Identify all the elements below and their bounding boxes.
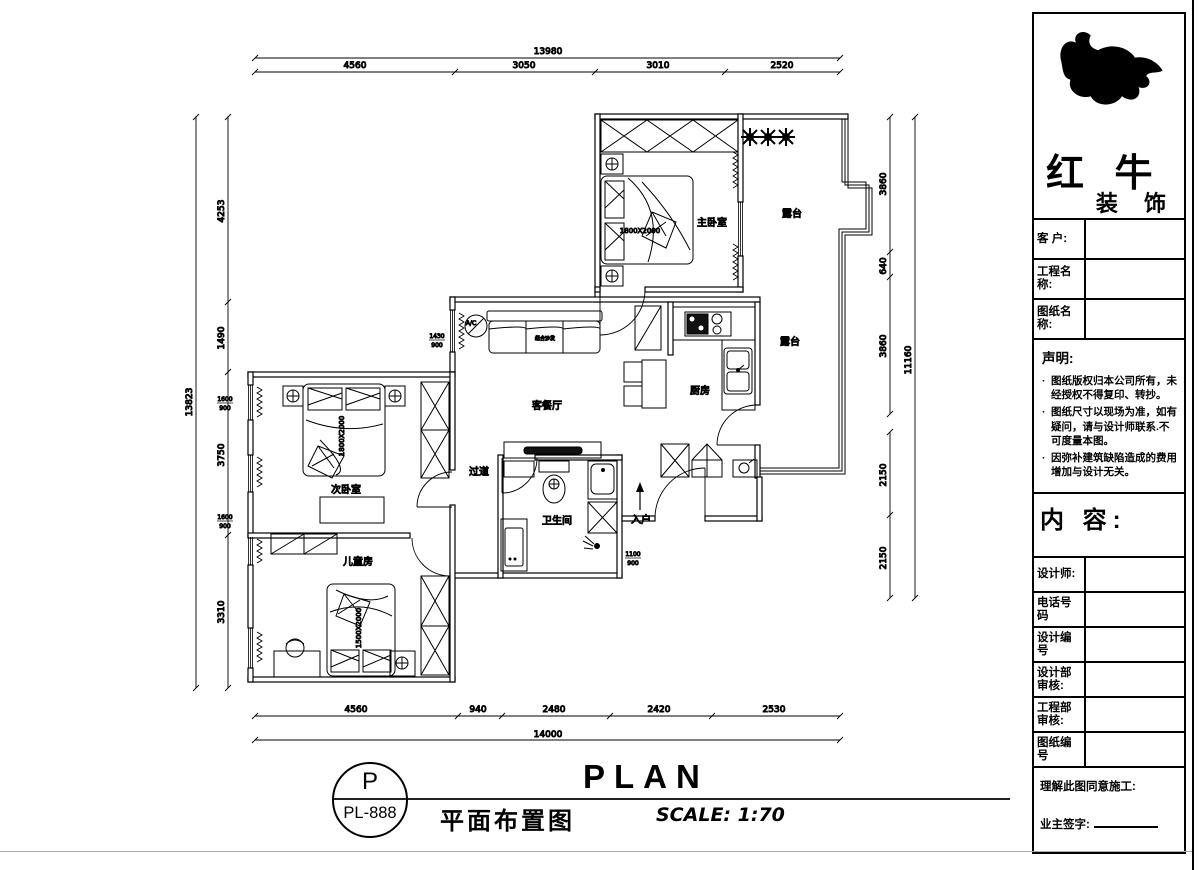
field-label-design-review: 设计部审核: xyxy=(1034,663,1086,696)
win-mark-4-w: 1100 xyxy=(625,551,640,558)
drawing-sheet: 13980 4560 3050 3010 2520 4560 940 2480 … xyxy=(0,0,1200,870)
field-label-engineering-review: 工程部审核: xyxy=(1034,698,1086,731)
room-label-terrace2: 露台 xyxy=(780,335,800,348)
win-mark-2-w: 1600 xyxy=(217,514,232,521)
win-mark-3-w: 1430 xyxy=(429,333,444,340)
win-mark-4-h: 900 xyxy=(627,560,639,567)
statement-item-2: 图纸尺寸以现场为准，如有疑问，请与设计师联系.不可度量本图。 xyxy=(1042,405,1178,448)
field-row-engineering-review: 工程部审核: xyxy=(1034,696,1184,731)
field-value-customer[interactable] xyxy=(1086,220,1184,258)
field-value-project-name[interactable] xyxy=(1086,260,1184,298)
statement-title: 声明: xyxy=(1042,347,1178,367)
drawing-number-bubble: P PL-888 xyxy=(332,762,408,838)
living-room-furniture xyxy=(465,306,666,458)
room-label-bath: 卫生间 xyxy=(542,514,572,527)
title-rule-line xyxy=(334,798,1010,800)
dim-bot-seg1: 4560 xyxy=(345,705,368,715)
field-value-design-review[interactable] xyxy=(1086,663,1184,696)
sheet-right-border xyxy=(1192,0,1194,870)
company-logo-box: 红 牛 装 饰 xyxy=(1034,14,1184,218)
field-label-designer: 设计师: xyxy=(1034,558,1086,591)
drawing-title-cn: 平面布置图 xyxy=(440,801,575,836)
statement-item-1: 图纸版权归本公司所有，未经授权不得复印、转抄。 xyxy=(1042,374,1178,402)
room-label-second: 次卧室 xyxy=(331,483,361,496)
title-block: 红 牛 装 饰 客 户: 工程名称: 图纸名称: 声明: 图纸版权归本公司所有，… xyxy=(1032,12,1186,854)
entry-arrow xyxy=(636,482,644,510)
field-row-sheet-number: 图纸编号 xyxy=(1034,731,1184,766)
second-bedroom-furniture xyxy=(283,382,449,523)
drawing-code-number: PL-888 xyxy=(334,804,406,823)
master-bedroom-furniture xyxy=(601,120,738,286)
bull-logo-icon xyxy=(1052,26,1170,126)
field-value-drawing-name[interactable] xyxy=(1086,300,1184,338)
content-section-label: 内 容: xyxy=(1034,492,1184,556)
second-bed-size: 1800X2000 xyxy=(338,416,346,456)
dim-bot-seg4: 2420 xyxy=(648,705,671,715)
dim-top xyxy=(252,55,843,75)
dim-right-seg1: 3860 xyxy=(879,172,889,195)
dim-left-seg2: 1490 xyxy=(217,326,227,349)
dim-top-seg1: 4560 xyxy=(344,61,367,71)
floor-plan-canvas: 13980 4560 3050 3010 2520 4560 940 2480 … xyxy=(0,0,1030,870)
room-label-master: 主卧室 xyxy=(697,216,727,229)
field-label-sheet-number: 图纸编号 xyxy=(1034,733,1086,766)
dim-left-seg4: 3310 xyxy=(217,600,227,623)
dim-right-seg4: 2150 xyxy=(879,463,889,486)
field-row-customer: 客 户: xyxy=(1034,218,1184,258)
field-label-project-name: 工程名称: xyxy=(1034,260,1086,298)
windows xyxy=(249,202,743,668)
dim-right-overall: 11160 xyxy=(904,345,914,374)
win-mark-2-h: 900 xyxy=(219,523,231,530)
dim-top-seg3: 3010 xyxy=(647,61,670,71)
dim-bot-seg2: 940 xyxy=(469,705,486,715)
win-mark-1-h: 900 xyxy=(219,405,231,412)
dim-left-overall: 13823 xyxy=(185,388,195,417)
dim-top-overall: 13980 xyxy=(534,47,563,57)
terrace-railing xyxy=(760,119,872,474)
field-label-phone: 电话号码 xyxy=(1034,593,1086,626)
statement-item-3: 因弥补建筑缺陷造成的费用增加与设计无关。 xyxy=(1042,451,1178,479)
room-label-terrace1: 露台 xyxy=(782,207,802,220)
field-label-customer: 客 户: xyxy=(1034,220,1086,258)
room-label-kitchen: 厨房 xyxy=(690,384,710,397)
dim-top-seg2: 3050 xyxy=(513,61,536,71)
win-mark-3-h: 900 xyxy=(431,342,443,349)
room-label-kids: 儿童房 xyxy=(343,555,373,568)
signature-section: 理解此图同意施工: 业主签字: xyxy=(1034,766,1184,852)
terrace-plants xyxy=(741,128,795,146)
field-row-phone: 电话号码 xyxy=(1034,591,1184,626)
field-value-sheet-number[interactable] xyxy=(1086,733,1184,766)
dim-bot-seg5: 2530 xyxy=(763,705,786,715)
dim-top-seg4: 2520 xyxy=(771,61,794,71)
approval-text: 理解此图同意施工: xyxy=(1040,778,1178,794)
drawing-code-letter: P xyxy=(334,768,406,796)
dim-bot-seg3: 2480 xyxy=(543,705,566,715)
ac-label: A/C xyxy=(466,320,476,327)
dim-right-seg5: 2150 xyxy=(879,546,889,569)
field-row-drawing-name: 图纸名称: xyxy=(1034,298,1184,338)
kids-room-furniture xyxy=(271,534,449,677)
room-label-living: 客餐厅 xyxy=(532,399,562,412)
field-row-project-name: 工程名称: xyxy=(1034,258,1184,298)
room-label-corridor: 过道 xyxy=(469,465,489,478)
master-bed-size: 1800X2000 xyxy=(620,227,660,235)
brand-name-line2: 装 饰 xyxy=(1096,186,1176,218)
field-label-design-number: 设计编号 xyxy=(1034,628,1086,661)
owner-signature-label: 业主签字: xyxy=(1040,819,1090,831)
field-value-engineering-review[interactable] xyxy=(1086,698,1184,731)
field-value-phone[interactable] xyxy=(1086,593,1184,626)
dim-bot-overall: 14000 xyxy=(534,730,563,740)
dim-right-seg2: 640 xyxy=(879,257,889,274)
kids-bed-size: 1500X2000 xyxy=(355,608,363,648)
sheet-bottom-border xyxy=(0,851,1192,852)
field-label-drawing-name: 图纸名称: xyxy=(1034,300,1086,338)
field-row-designer: 设计师: xyxy=(1034,556,1184,591)
owner-signature-line[interactable] xyxy=(1094,816,1158,828)
room-label-entry: 入户 xyxy=(631,513,651,526)
field-row-design-number: 设计编号 xyxy=(1034,626,1184,661)
field-value-design-number[interactable] xyxy=(1086,628,1184,661)
dim-left-seg3: 3750 xyxy=(217,443,227,466)
drawing-title-en: PLAN xyxy=(583,758,709,796)
field-value-designer[interactable] xyxy=(1086,558,1184,591)
drawing-scale: SCALE: 1:70 xyxy=(656,804,785,826)
win-mark-1-w: 1600 xyxy=(217,396,232,403)
statement-section: 声明: 图纸版权归本公司所有，未经授权不得复印、转抄。 图纸尺寸以现场为准，如有… xyxy=(1034,338,1184,492)
dim-right-seg3: 3860 xyxy=(879,334,889,357)
field-row-design-review: 设计部审核: xyxy=(1034,661,1184,696)
dim-left-seg1: 4253 xyxy=(217,200,227,223)
sofa-label: 组合沙发 xyxy=(535,335,555,342)
